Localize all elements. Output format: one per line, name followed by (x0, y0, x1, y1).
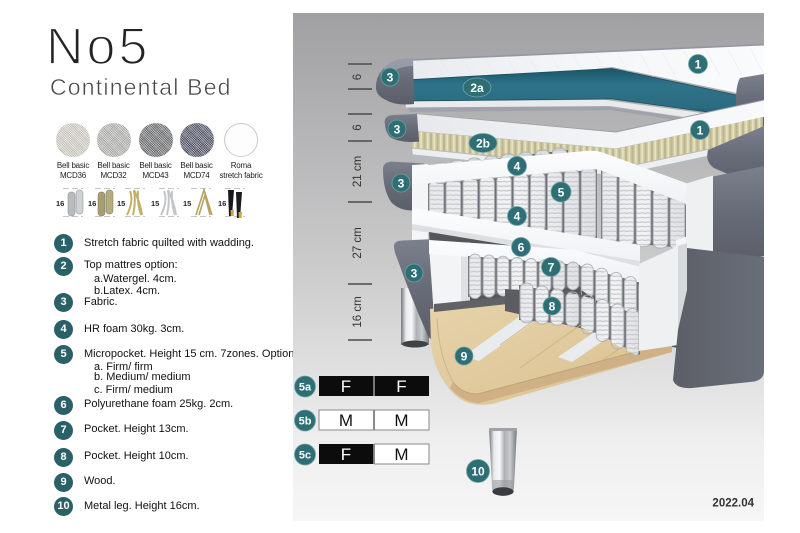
svg-text:3: 3 (398, 176, 405, 190)
svg-text:6: 6 (352, 74, 364, 80)
svg-text:5b: 5b (299, 416, 312, 428)
svg-text:F: F (341, 445, 351, 464)
svg-text:5a: 5a (299, 382, 312, 394)
svg-text:27 cm: 27 cm (352, 227, 364, 258)
svg-text:2022.04: 2022.04 (712, 498, 754, 510)
svg-text:3: 3 (394, 122, 401, 136)
svg-text:1: 1 (695, 57, 702, 71)
svg-text:M: M (394, 411, 408, 430)
svg-text:3: 3 (411, 266, 418, 280)
svg-text:2a: 2a (470, 81, 484, 95)
svg-text:5: 5 (558, 185, 565, 199)
svg-text:6: 6 (352, 124, 364, 130)
svg-text:3: 3 (387, 70, 394, 84)
svg-text:4: 4 (514, 209, 521, 223)
svg-text:6: 6 (518, 240, 525, 254)
svg-text:16 cm: 16 cm (352, 296, 364, 327)
svg-text:10: 10 (471, 464, 485, 478)
svg-text:21 cm: 21 cm (352, 156, 364, 187)
svg-text:7: 7 (548, 260, 555, 274)
svg-text:1: 1 (697, 123, 704, 137)
svg-text:F: F (396, 377, 406, 396)
svg-text:8: 8 (549, 299, 556, 313)
svg-text:M: M (339, 411, 353, 430)
svg-text:5c: 5c (299, 450, 311, 462)
svg-text:M: M (394, 445, 408, 464)
svg-text:F: F (341, 377, 351, 396)
svg-text:2b: 2b (476, 136, 490, 150)
svg-text:4: 4 (514, 159, 521, 173)
svg-text:9: 9 (461, 349, 468, 363)
